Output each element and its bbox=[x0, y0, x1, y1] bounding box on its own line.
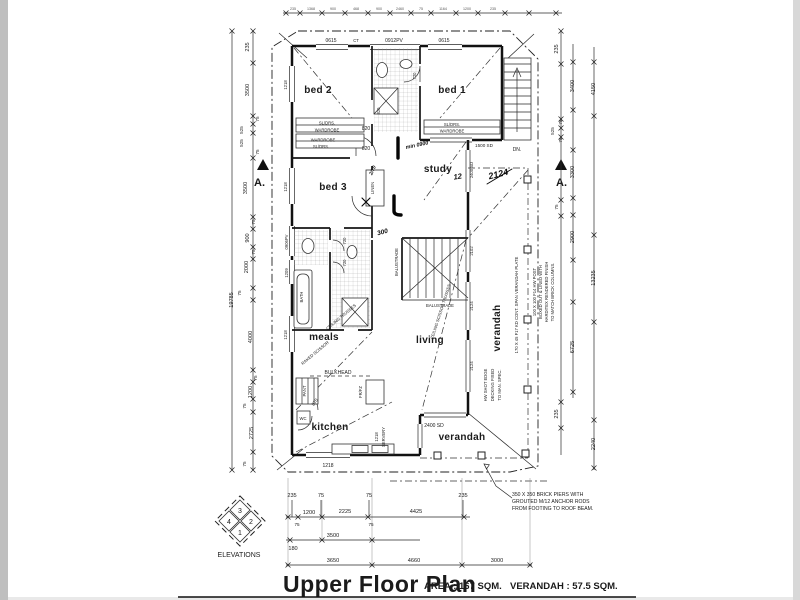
dim-label: 235 bbox=[554, 44, 560, 53]
elevation-number: 1 bbox=[238, 530, 242, 537]
linen-label: LINEN bbox=[370, 182, 375, 194]
room-label-bed3: bed 3 bbox=[319, 182, 347, 193]
room-label-bed1: bed 1 bbox=[438, 85, 466, 96]
room-label-kitchen: kitchen bbox=[311, 422, 348, 433]
robe-label: WARDROBE bbox=[315, 128, 340, 133]
floor-plan-drawing: 0615 CT 0912PV 0615 1218 1218 0906PV 120… bbox=[0, 0, 800, 600]
truss-label: RAKED SCISSOR bbox=[300, 340, 330, 366]
dim-label: 13235 bbox=[591, 270, 597, 286]
dim-label: 235 bbox=[287, 493, 296, 499]
note-post: 100 X 100 F14 HW POST bbox=[532, 267, 537, 316]
robe-label: WARDROBE bbox=[440, 129, 465, 134]
robe-label: SL/DRS. bbox=[444, 122, 460, 127]
dim-label: 3000 bbox=[491, 558, 503, 564]
dim-label: 2725 bbox=[249, 427, 255, 439]
dim-label: 1200 bbox=[463, 7, 471, 11]
internal-stair: BALUSTRADE BALUSTRADE bbox=[394, 238, 468, 308]
elevation-number: 2 bbox=[249, 519, 253, 526]
elevation-number: 4 bbox=[227, 519, 231, 526]
note-post: TO MATCH BRICK COLUMNS. bbox=[550, 263, 555, 322]
note-piers: 350 X 350 BRICK PIERS WITH bbox=[512, 492, 584, 498]
door-size-label: 820 bbox=[362, 146, 371, 152]
dim-label: 2460 bbox=[396, 7, 404, 11]
robe-label: SL/DRS. bbox=[313, 144, 329, 149]
dim-label: 3500 bbox=[245, 84, 251, 96]
dim-label: 75 bbox=[255, 116, 260, 122]
dim-label: 1200 bbox=[303, 510, 315, 516]
elevation-number: 3 bbox=[238, 508, 242, 515]
pantry-label: PANT bbox=[302, 385, 307, 396]
servery-label: SERVERY bbox=[381, 427, 386, 447]
dim-label: 3500 bbox=[327, 533, 339, 539]
note-piers: GROUTED M/12 ANCHOR RODS bbox=[512, 499, 590, 505]
dim-label: 75 bbox=[419, 7, 423, 11]
balustrade-label: BALUSTRADE bbox=[394, 248, 399, 276]
dimensions-right: 235 525 75 75 75 235 3400 3300 2900 6725… bbox=[550, 29, 597, 471]
note-decking: DECKING FIXED bbox=[490, 369, 495, 402]
dim-label: 75 bbox=[366, 493, 372, 499]
door-size-label: 1500 SD bbox=[475, 143, 494, 148]
dim-label: 468 bbox=[353, 7, 359, 11]
room-label-verandah-right: verandah bbox=[492, 305, 503, 352]
window-label: 0906PV bbox=[284, 234, 289, 249]
window-label: 1209 bbox=[284, 268, 289, 278]
dim-label: 235 bbox=[490, 7, 496, 11]
room-label-bed2: bed 2 bbox=[304, 85, 332, 96]
dim-label: 4425 bbox=[410, 509, 422, 515]
note-post: HARDITEX RENDERED FINISH bbox=[544, 262, 549, 323]
dim-label: 900 bbox=[376, 7, 382, 11]
fridge-label: FR/FZ bbox=[358, 386, 363, 398]
dim-label: 75 bbox=[255, 149, 260, 155]
note-piers: FROM FOOTING TO ROOF BEAM. bbox=[512, 506, 593, 512]
dim-label: 75 bbox=[237, 290, 242, 296]
truss-label: CEILING SCISSOR TRUSSES bbox=[429, 283, 452, 340]
door-size-label: 820 bbox=[376, 107, 381, 115]
dim-label: 2000 bbox=[244, 261, 250, 273]
wc-label: WC bbox=[300, 416, 307, 421]
door-size-label: 2400 SD bbox=[469, 162, 474, 178]
dim-label: 75 bbox=[294, 522, 300, 527]
truss-labels: CEILING SCISSOR TRUSSES CEILING TRUSSES … bbox=[300, 283, 452, 366]
dimensions-top: 235 1368 900 468 900 2460 75 1164 1200 2… bbox=[283, 7, 562, 16]
window-label: 0912PV bbox=[385, 38, 403, 44]
door-size-label: 2400 SD bbox=[424, 423, 444, 429]
handwriting: min 0900 2/70 300 12 2124 bbox=[362, 138, 512, 237]
window-label: CT bbox=[353, 38, 359, 43]
dim-label: 900 bbox=[330, 7, 336, 11]
dim-label: 75 bbox=[558, 119, 563, 125]
handwritten-note: 2124 bbox=[486, 167, 509, 182]
dim-label: 75 bbox=[318, 493, 324, 499]
dim-label: 1368 bbox=[307, 7, 315, 11]
bulkhead-label: BULKHEAD bbox=[325, 370, 352, 376]
dim-label: 180 bbox=[288, 546, 297, 552]
dim-label: 6725 bbox=[570, 341, 576, 353]
notes: 350 X 350 BRICK PIERS WITH GROUTED M/12 … bbox=[483, 256, 593, 512]
dim-label: 525 bbox=[550, 127, 555, 135]
handwritten-note: 12 bbox=[453, 171, 463, 181]
door-size-label: 720 bbox=[342, 237, 347, 245]
kitchen-fittings: PANT WC FR/FZ 1218 SERVERY BULKHEAD 870 bbox=[296, 370, 394, 454]
window-label: 2102 bbox=[469, 246, 474, 256]
dim-label: 75 bbox=[251, 249, 256, 255]
dim-label: 3650 bbox=[327, 558, 339, 564]
dim-label: 525 bbox=[239, 139, 244, 147]
elevations-symbol: 3 4 2 1 ELEVATIONS bbox=[215, 496, 265, 559]
note-plate: 170 X 45 F17 KD CONT. SPAN VERANDAH PLAT… bbox=[514, 256, 519, 353]
door-size-label: 720 bbox=[412, 72, 417, 80]
dim-label: 525 bbox=[239, 126, 244, 134]
dim-label: 1200 bbox=[248, 386, 254, 398]
window-label: 1218 bbox=[283, 330, 288, 340]
window-label: 0615 bbox=[438, 38, 449, 44]
window-label: 2124 bbox=[469, 361, 474, 371]
dim-label: 235 bbox=[245, 42, 251, 51]
window-label: 2124 bbox=[469, 301, 474, 311]
handwritten-note: 300 bbox=[376, 228, 389, 238]
title-block: Upper Floor Plan AREA : 167 SQM. VERANDA… bbox=[178, 571, 636, 597]
down-label: DN. bbox=[513, 147, 522, 153]
dim-label: 1164 bbox=[439, 7, 447, 11]
verandah-area-label: VERANDAH : 57.5 SQM. bbox=[510, 581, 618, 592]
dim-label: 75 bbox=[368, 522, 374, 527]
section-label: A. bbox=[556, 177, 567, 189]
area-label: AREA : 167 SQM. bbox=[424, 581, 502, 592]
robe-label: WARDROBE bbox=[311, 138, 336, 143]
window-label: 1218 bbox=[283, 182, 288, 192]
dim-label: 235 bbox=[458, 493, 467, 499]
dim-label: 2900 bbox=[570, 231, 576, 243]
dim-label: 75 bbox=[558, 137, 563, 143]
dim-label: 2225 bbox=[339, 509, 351, 515]
window-label: 1218 bbox=[322, 463, 333, 469]
door-size-label: 820 bbox=[362, 126, 371, 132]
dim-label: 19785 bbox=[229, 292, 235, 308]
dim-label: 900 bbox=[245, 233, 251, 242]
note-decking: TO MAN. SPEC. bbox=[497, 369, 502, 400]
dim-label: 75 bbox=[253, 375, 258, 381]
dim-label: 235 bbox=[554, 409, 560, 418]
handwritten-note: min 0900 bbox=[405, 140, 429, 151]
dimensions-left: 19785 235 3500 75 525 525 75 3500 75 900… bbox=[229, 29, 260, 473]
dimensions-bottom: 235 75 75 235 1200 2225 4425 75 75 3500 … bbox=[286, 478, 533, 568]
bath-label: BATH bbox=[299, 292, 304, 303]
dim-label: 4150 bbox=[591, 83, 597, 95]
robe-label: SL/DRS. bbox=[319, 121, 335, 126]
dim-label: 75 bbox=[251, 219, 256, 225]
note-post: BOXED OUT & LINED WITH bbox=[538, 265, 543, 319]
dim-label: 235 bbox=[290, 7, 296, 11]
dim-label: 75 bbox=[554, 204, 559, 210]
section-markers: A. A. bbox=[254, 159, 567, 189]
dim-label: 75 bbox=[242, 403, 247, 409]
door-size-label: 720 bbox=[342, 259, 347, 267]
room-label-study: study bbox=[424, 164, 452, 175]
window-label: 1218 bbox=[283, 80, 288, 90]
dim-label: 2240 bbox=[591, 438, 597, 450]
dim-label: 4660 bbox=[408, 558, 420, 564]
dim-label: 75 bbox=[242, 461, 247, 467]
note-decking: HW SHOT EDGE bbox=[483, 368, 488, 401]
opening-labels: 2400 SD 2102 2124 2124 2400 SD bbox=[424, 162, 474, 429]
elevations-caption: ELEVATIONS bbox=[218, 552, 261, 559]
floor-plan-page: 0615 CT 0912PV 0615 1218 1218 0906PV 120… bbox=[0, 0, 800, 600]
dim-label: 3400 bbox=[570, 80, 576, 92]
section-label: A. bbox=[254, 177, 265, 189]
dim-label: 3500 bbox=[243, 182, 249, 194]
servery-size-label: 1218 bbox=[374, 432, 379, 442]
room-label-verandah: verandah bbox=[439, 432, 486, 443]
dim-label: 4000 bbox=[248, 331, 254, 343]
window-label: 0615 bbox=[325, 38, 336, 44]
dim-label: 3300 bbox=[570, 166, 576, 178]
